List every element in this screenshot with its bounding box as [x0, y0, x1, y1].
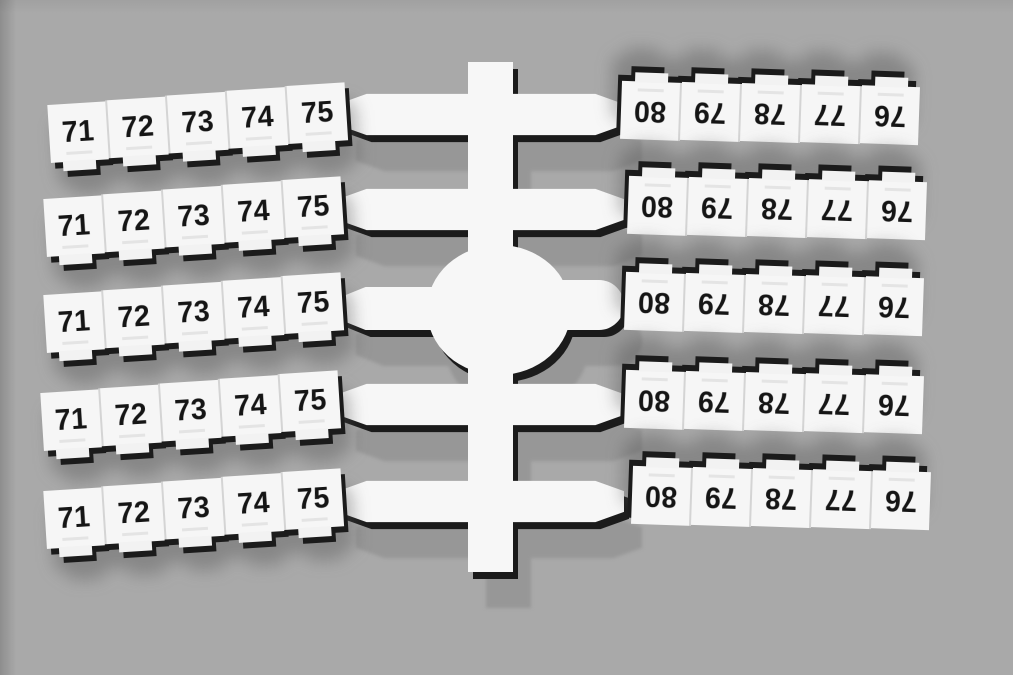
- marker-tab: 78: [751, 468, 813, 528]
- marker-tab: 80: [631, 466, 693, 526]
- tab-foot: [178, 536, 212, 548]
- marker-number: 78: [764, 482, 798, 513]
- marker-strip-right-upside-down: 76 77 78 79 80: [631, 464, 931, 532]
- marker-number: 75: [296, 483, 330, 515]
- marker-number: 74: [236, 488, 270, 520]
- tab-foot: [706, 458, 740, 469]
- tab-foot: [766, 459, 800, 470]
- marker-number: 80: [644, 480, 678, 511]
- tab-foot: [646, 457, 680, 468]
- marker-tab: 72: [101, 483, 165, 545]
- tab-foot: [58, 545, 92, 557]
- marker-strip-left: 71 72 73 74 75: [43, 470, 344, 547]
- tab-foot: [238, 531, 272, 543]
- marker-tab: 74: [221, 473, 285, 535]
- marker-rows: 71 72 73 74 75 76 77 78 79 80 71 72 73 7…: [0, 0, 1013, 675]
- marker-tab: 77: [811, 469, 873, 529]
- marker-tab: 73: [161, 478, 225, 540]
- marker-number: 71: [57, 502, 91, 534]
- tab-foot: [298, 526, 332, 538]
- marker-row: 71 72 73 74 75 76 77 78 79 80: [0, 0, 1013, 675]
- tab-foot: [118, 540, 152, 552]
- marker-number: 77: [824, 484, 858, 515]
- marker-tab: 75: [281, 468, 345, 530]
- marker-number: 72: [117, 497, 151, 529]
- marker-tab: 76: [871, 470, 931, 530]
- marker-number: 76: [884, 485, 918, 516]
- marker-tab: 79: [691, 467, 753, 527]
- tab-foot: [886, 462, 920, 473]
- tab-foot: [826, 461, 860, 472]
- marker-number: 79: [704, 481, 738, 512]
- marker-number: 73: [176, 493, 210, 525]
- product-photo: 71 72 73 74 75 76 77 78 79 80 71 72 73 7…: [0, 0, 1013, 675]
- marker-tab: 71: [43, 487, 105, 549]
